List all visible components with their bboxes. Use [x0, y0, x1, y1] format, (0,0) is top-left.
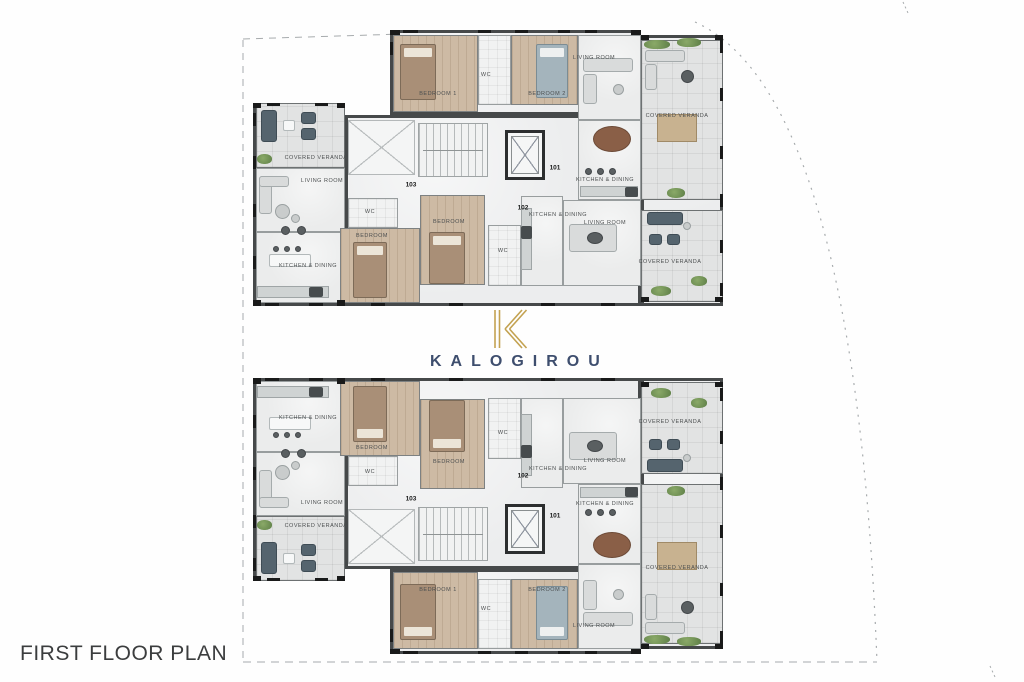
sofa-symbol: [645, 50, 685, 62]
opening-marker: [449, 303, 463, 306]
outdoor-seat-symbol: [301, 112, 316, 124]
opening-marker: [720, 240, 723, 253]
opening-marker: [265, 378, 279, 381]
sofa-symbol: [645, 594, 657, 620]
room-label: BEDROOM: [356, 445, 388, 451]
opening-marker: [631, 649, 641, 654]
opening-marker: [253, 156, 256, 169]
plant-symbol: [644, 635, 670, 644]
plant-symbol: [691, 276, 707, 286]
page-title: FIRST FLOOR PLAN: [20, 642, 227, 666]
opening-marker: [403, 651, 418, 654]
room-label: LIVING ROOM: [584, 458, 626, 464]
outdoor-seat-symbol: [667, 439, 680, 450]
opening-marker: [253, 576, 261, 581]
room-label: COVERED VERANDA: [639, 419, 702, 425]
opening-marker: [541, 303, 555, 306]
opening-marker: [585, 651, 597, 654]
room-label: BEDROOM 1: [419, 91, 457, 97]
bed-symbol: [353, 242, 387, 298]
stool-symbol: [297, 449, 306, 458]
outdoor-seat-symbol: [649, 439, 662, 450]
room-label: KITCHEN & DINING: [576, 501, 634, 507]
appliance-symbol: [625, 487, 638, 497]
room-label: COVERED VERANDA: [646, 565, 709, 571]
room-label: BEDROOM: [433, 219, 465, 225]
opening-marker: [715, 644, 723, 649]
unit-number: 101: [550, 513, 561, 520]
opening-marker: [403, 30, 418, 33]
opening-marker: [715, 382, 723, 387]
room-label: COVERED VERANDA: [639, 259, 702, 265]
outdoor-seat-symbol: [261, 542, 277, 574]
stool-symbol: [284, 432, 290, 438]
brand-logo: KALOGIROU: [430, 308, 590, 371]
opening-marker: [601, 303, 615, 306]
stool-symbol: [295, 246, 301, 252]
stool-symbol: [681, 70, 694, 83]
stool-symbol: [609, 509, 616, 516]
void-symbol: [348, 509, 415, 564]
elevator-symbol: [505, 504, 545, 554]
unit-number: 102: [518, 205, 529, 212]
opening-marker: [720, 631, 723, 644]
appliance-symbol: [309, 387, 323, 397]
room-label: COVERED VERANDA: [285, 523, 348, 529]
unit-number: 102: [518, 473, 529, 480]
opening-marker: [478, 651, 491, 654]
plant-symbol: [667, 486, 685, 496]
opening-marker: [720, 477, 723, 490]
table-symbol: [283, 553, 295, 564]
opening-marker: [720, 431, 723, 444]
outdoor-seat-symbol: [301, 128, 316, 140]
room-label: LIVING ROOM: [584, 220, 626, 226]
opening-marker: [558, 651, 570, 654]
floor-plan-upper: BEDROOM 1WCBEDROOM 2LIVING ROOMCOVERED V…: [253, 28, 723, 306]
room-label: BEDROOM 2: [528, 587, 566, 593]
opening-marker: [449, 378, 463, 381]
opening-marker: [558, 30, 570, 33]
table-symbol: [683, 454, 691, 462]
room-label: KITCHEN & DINING: [576, 177, 634, 183]
opening-marker: [337, 300, 345, 306]
sofa-symbol: [645, 64, 657, 90]
opening-marker: [265, 303, 279, 306]
room-label: LIVING ROOM: [573, 55, 615, 61]
unit-number: 103: [406, 182, 417, 189]
plant-symbol: [667, 188, 685, 198]
sofa-symbol: [583, 580, 597, 610]
opening-marker: [390, 42, 393, 55]
bed-symbol: [353, 386, 387, 442]
staircase-symbol: [418, 507, 488, 561]
opening-marker: [337, 103, 345, 108]
stool-symbol: [597, 509, 604, 516]
room-label: KITCHEN & DINING: [279, 415, 337, 421]
room-wc-c: [488, 398, 521, 459]
opening-marker: [601, 378, 615, 381]
bed-symbol: [429, 400, 465, 452]
room-wc-a: [478, 35, 511, 105]
opening-marker: [715, 297, 723, 302]
opening-marker: [253, 415, 256, 428]
room-label: LIVING ROOM: [301, 500, 343, 506]
void-symbol: [348, 120, 415, 175]
opening-marker: [541, 378, 555, 381]
sofa-symbol: [259, 176, 289, 187]
appliance-symbol: [521, 226, 532, 239]
dining-table-symbol: [593, 126, 631, 152]
opening-marker: [253, 515, 256, 528]
kalogirou-monogram-icon: [492, 308, 528, 350]
room-label: BEDROOM: [433, 459, 465, 465]
outdoor-seat-symbol: [261, 110, 277, 142]
opening-marker: [390, 649, 400, 654]
stool-symbol: [609, 168, 616, 175]
plant-symbol: [677, 637, 701, 646]
opening-marker: [478, 30, 491, 33]
opening-marker: [720, 146, 723, 159]
outdoor-seat-symbol: [649, 234, 662, 245]
stool-symbol: [585, 168, 592, 175]
table-symbol: [683, 222, 691, 230]
plant-symbol: [257, 154, 272, 164]
table-symbol: [275, 465, 290, 480]
opening-marker: [315, 103, 328, 106]
stool-symbol: [281, 226, 290, 235]
room-wc-c: [488, 225, 521, 286]
opening-marker: [641, 35, 649, 40]
appliance-symbol: [521, 445, 532, 458]
opening-marker: [309, 378, 323, 381]
bed-symbol: [429, 232, 465, 284]
stool-symbol: [284, 246, 290, 252]
floor-plan-lower: BEDROOM 1WCBEDROOM 2LIVING ROOMCOVERED V…: [253, 378, 723, 656]
outdoor-seat-symbol: [647, 212, 683, 225]
room-label: COVERED VERANDA: [646, 113, 709, 119]
opening-marker: [309, 303, 323, 306]
opening-marker: [337, 576, 345, 581]
opening-marker: [337, 378, 345, 384]
opening-marker: [390, 629, 393, 642]
stool-symbol: [587, 232, 603, 244]
room-wc-a: [478, 579, 511, 649]
stool-symbol: [585, 509, 592, 516]
opening-marker: [390, 30, 400, 35]
stool-symbol: [273, 246, 279, 252]
table-symbol: [291, 214, 300, 223]
floor-plan-sheet: BEDROOM 1WCBEDROOM 2LIVING ROOMCOVERED V…: [0, 0, 1024, 682]
opening-marker: [267, 578, 280, 581]
room-label: WC: [481, 606, 491, 612]
sofa-symbol: [583, 74, 597, 104]
opening-marker: [253, 103, 261, 108]
bed-symbol: [536, 44, 568, 98]
opening-marker: [720, 40, 723, 53]
opening-marker: [253, 256, 256, 269]
unit-number: 103: [406, 496, 417, 503]
sofa-symbol: [645, 622, 685, 634]
room-label: BEDROOM 1: [419, 587, 457, 593]
plant-symbol: [644, 40, 670, 49]
opening-marker: [641, 382, 649, 387]
stool-symbol: [281, 449, 290, 458]
bed-symbol: [536, 586, 568, 640]
brand-wordmark: KALOGIROU: [430, 353, 609, 371]
opening-marker: [720, 583, 723, 596]
appliance-symbol: [309, 287, 323, 297]
room-label: WC: [498, 430, 508, 436]
room-label: COVERED VERANDA: [285, 155, 348, 161]
room-label: BEDROOM: [356, 233, 388, 239]
table-symbol: [291, 461, 300, 470]
stool-symbol: [273, 432, 279, 438]
opening-marker: [641, 644, 649, 649]
opening-marker: [253, 204, 256, 217]
room-label: KITCHEN & DINING: [279, 263, 337, 269]
opening-marker: [515, 651, 528, 654]
plant-symbol: [651, 388, 671, 398]
room-label: BEDROOM 2: [528, 91, 566, 97]
opening-marker: [641, 297, 649, 302]
appliance-symbol: [625, 187, 638, 197]
opening-marker: [371, 378, 385, 381]
opening-marker: [371, 303, 385, 306]
dining-table-symbol: [593, 532, 631, 558]
opening-marker: [253, 467, 256, 480]
plant-symbol: [691, 398, 707, 408]
room-label: LIVING ROOM: [301, 178, 343, 184]
stool-symbol: [681, 601, 694, 614]
plant-symbol: [651, 286, 671, 296]
room-label: WC: [481, 72, 491, 78]
opening-marker: [267, 103, 280, 106]
stool-symbol: [297, 226, 306, 235]
stool-symbol: [295, 432, 301, 438]
table-symbol: [283, 120, 295, 131]
room-label: WC: [365, 469, 375, 475]
plant-symbol: [257, 520, 272, 530]
opening-marker: [715, 35, 723, 40]
room-label: KITCHEN & DINING: [529, 212, 587, 218]
outdoor-seat-symbol: [667, 234, 680, 245]
room-label: LIVING ROOM: [573, 623, 615, 629]
table-symbol: [275, 204, 290, 219]
room-label: KITCHEN & DINING: [529, 466, 587, 472]
opening-marker: [631, 30, 641, 35]
unit-number: 101: [550, 165, 561, 172]
opening-marker: [515, 30, 528, 33]
sofa-symbol: [259, 497, 289, 508]
table-symbol: [613, 589, 624, 600]
opening-marker: [253, 558, 256, 571]
room-label: WC: [365, 209, 375, 215]
opening-marker: [720, 388, 723, 401]
table-symbol: [613, 84, 624, 95]
outdoor-seat-symbol: [301, 544, 316, 556]
room-label: WC: [498, 248, 508, 254]
opening-marker: [720, 525, 723, 538]
opening-marker: [315, 578, 328, 581]
opening-marker: [253, 300, 261, 306]
stool-symbol: [587, 440, 603, 452]
elevator-symbol: [505, 130, 545, 180]
outdoor-seat-symbol: [647, 459, 683, 472]
stool-symbol: [597, 168, 604, 175]
opening-marker: [720, 194, 723, 207]
opening-marker: [585, 30, 597, 33]
plant-symbol: [677, 38, 701, 47]
opening-marker: [253, 113, 256, 126]
outdoor-seat-symbol: [301, 560, 316, 572]
opening-marker: [253, 378, 261, 384]
opening-marker: [720, 283, 723, 296]
staircase-symbol: [418, 123, 488, 177]
opening-marker: [720, 88, 723, 101]
